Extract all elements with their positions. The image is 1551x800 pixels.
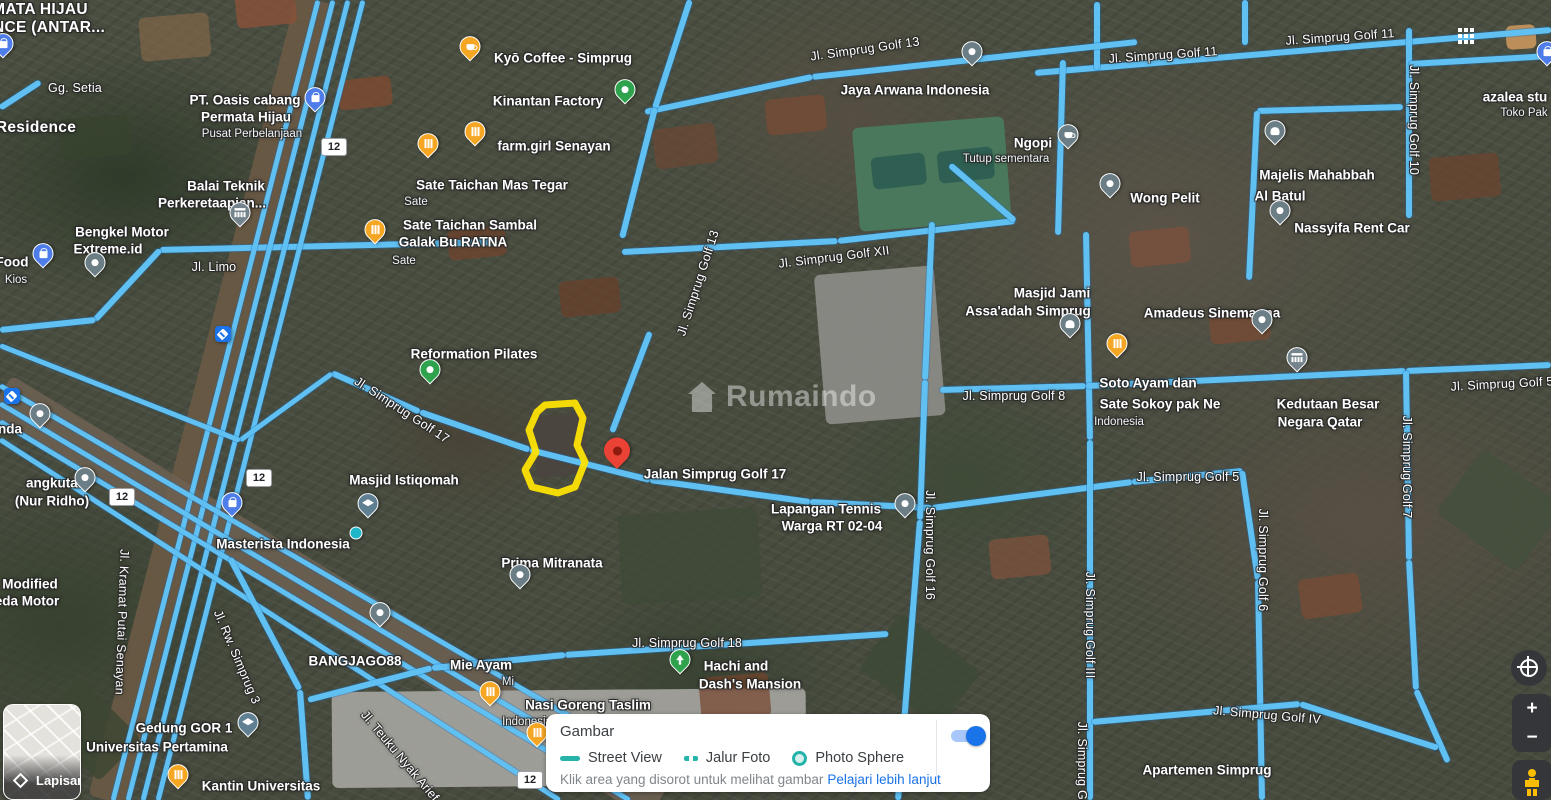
photo-sphere-icon (792, 751, 807, 766)
gray-glyph-icon (511, 565, 530, 584)
school-glyph-icon (239, 713, 258, 732)
map-label: Kantin Universitas (202, 779, 321, 794)
bank-glyph-icon (1288, 348, 1307, 367)
images-panel-title: Gambar (560, 723, 614, 740)
map-label: (Nur Ridho) (15, 494, 89, 509)
street-view-road[interactable] (1413, 689, 1450, 763)
sate-taichan-mas-tegar-pin[interactable] (413, 129, 443, 159)
terrain-patch (859, 612, 981, 728)
terrain-patch (651, 122, 718, 170)
map-label: DENCE (ANTAR... (0, 19, 105, 37)
photo-sphere-dot-pin[interactable] (350, 527, 363, 540)
food-glyph-icon (366, 220, 385, 239)
map-label: Jl. Simprug Golf 8 (963, 389, 1066, 403)
transit-station-b-pin[interactable] (4, 388, 20, 404)
street-view-road[interactable] (609, 331, 653, 433)
map-label: Jl. Simprug Golf 5 (1137, 470, 1240, 484)
street-view-road[interactable] (0, 317, 95, 333)
map-label: Tutup sementara (963, 153, 1050, 165)
map-label: Jalan Simprug Golf 17 (644, 467, 787, 482)
lapangan-tennis-pin[interactable] (890, 489, 920, 519)
map-label: Galak Bu RATNA (399, 235, 508, 250)
map-label: Majelis Mahabbah (1259, 168, 1375, 183)
map-label: Jl. Simprug Golf 13 (810, 34, 921, 63)
map-label: Nasi Goreng Taslim (525, 698, 651, 713)
map-label: Universitas Pertamina (86, 740, 228, 755)
zoom-control: + − (1512, 694, 1551, 752)
map-label: Wong Pelit (1130, 191, 1200, 206)
toggle-thumb (966, 726, 986, 746)
map-label: Jl. Simprug Golf III (1083, 572, 1097, 679)
map-label: Jl. Simprug Golf 7 (1400, 416, 1414, 519)
terrain-patch (138, 12, 212, 62)
map-label: Gg. Setia (48, 81, 102, 95)
map-label: Jl. Simprug Golf 18 (632, 636, 742, 650)
street-view-label: Street View (588, 750, 662, 766)
map-label: Sate Taichan Sambal (403, 218, 537, 233)
pegman-icon (1524, 769, 1540, 791)
map-label: Jl. Simprug Golf 5 (1450, 374, 1551, 393)
map-label: BANGJAGO88 (308, 654, 401, 669)
street-view-road[interactable] (652, 0, 693, 109)
map-viewport: Rumaindo MATA HIJAUDENCE (ANTAR...Reside… (0, 0, 1551, 800)
street-view-road[interactable] (1406, 362, 1551, 374)
street-view-road[interactable] (1094, 2, 1100, 70)
street-view-road[interactable] (0, 79, 42, 110)
map-label: Sate (392, 255, 416, 267)
gray-glyph-icon (76, 468, 95, 487)
learn-more-link[interactable]: Pelajari lebih lanjut (827, 772, 940, 787)
map-label: Warga RT 02-04 (782, 519, 883, 534)
my-location-button[interactable] (1511, 650, 1547, 686)
map-label: Indonesia (1094, 416, 1144, 428)
mosque-glyph-icon (1061, 314, 1080, 333)
kyo-coffee-pin[interactable] (455, 32, 485, 62)
coffeegray-glyph-icon (1059, 125, 1078, 144)
apartment-grid-pin[interactable] (1458, 28, 1474, 44)
terrain-patch (1436, 448, 1551, 572)
food-kios-pin[interactable] (28, 239, 58, 269)
zoom-in-button[interactable]: + (1512, 694, 1551, 723)
map-label: Sate Taichan Mas Tegar (416, 178, 568, 193)
street-view-road[interactable] (1055, 60, 1066, 235)
jalan-simprug-golf-17-marker-pin[interactable] (599, 432, 636, 469)
map-label: Negara Qatar (1278, 415, 1363, 430)
layers-label: Lapisan (36, 773, 81, 788)
photo-sphere-label: Photo Sphere (815, 750, 904, 766)
bag-glyph-icon (306, 88, 325, 107)
case-glyph-icon (223, 493, 242, 512)
bank-glyph-icon (231, 203, 250, 222)
gray-glyph-icon (1101, 174, 1120, 193)
map-label: Kinantan Factory (493, 94, 603, 109)
school-glyph-icon (359, 494, 378, 513)
route-shield: 12 (321, 138, 347, 156)
map-label: Mi (502, 676, 514, 688)
bag-glyph-icon (1538, 42, 1551, 61)
map-label: Kyō Coffee - Simprug (494, 51, 632, 66)
green-glyph-icon (616, 80, 635, 99)
map-label: Food (0, 255, 29, 270)
map-label: PT. Oasis cabang (189, 93, 300, 108)
map-label: Permata Hijau (201, 110, 291, 125)
transit-station-a-pin[interactable] (215, 326, 231, 342)
map-label: Residence (0, 119, 76, 137)
food-glyph-icon (169, 765, 188, 784)
map-label: Jl. Simprug Golf 6 (1256, 509, 1270, 612)
food-glyph-icon (1108, 334, 1127, 353)
food-glyph-icon (481, 682, 500, 701)
map-label: Jl. Simprug Golf 16 (923, 490, 937, 600)
kinantan-factory-pin[interactable] (610, 75, 640, 105)
tree-glyph-icon (671, 650, 690, 669)
street-view-road[interactable] (1406, 560, 1419, 690)
images-panel: Gambar Street View Jalur Foto Photo Sphe… (546, 714, 990, 792)
watermark-house-icon (688, 382, 716, 412)
map-label: nda (0, 422, 22, 437)
map-label: Jl. Simprug Golf 17 (352, 374, 452, 446)
jalur-foto-label: Jalur Foto (706, 750, 770, 766)
route-shield: 12 (517, 771, 543, 789)
map-label: azalea stu (1483, 90, 1548, 105)
food-glyph-icon (419, 134, 438, 153)
street-view-road[interactable] (1242, 0, 1248, 45)
gray-glyph-icon (1253, 310, 1272, 329)
map-label: Lapangan Tennis (771, 502, 881, 517)
map-label: Modified (2, 577, 58, 592)
gray-glyph-icon (86, 253, 105, 272)
street-view-road[interactable] (1083, 232, 1093, 440)
kedutaan-qatar-pin[interactable] (1282, 343, 1312, 373)
majelis-mahabbah-pin[interactable] (1260, 116, 1290, 146)
map-label: Jl. Rw. Simprug 3 (211, 608, 263, 706)
street-view-road[interactable] (619, 107, 658, 238)
map-label: Sate Sokoy pak Ne (1100, 397, 1221, 412)
route-shield: 12 (109, 488, 135, 506)
map-label: Gedung GOR 1 (136, 721, 233, 736)
map-label: Jl. Limo (192, 260, 237, 274)
map-label: Toko Pak (1500, 107, 1547, 119)
grid-glyph-icon (1458, 28, 1474, 44)
map-label: Masjid Jami (1014, 286, 1091, 301)
terrain-patch (988, 534, 1052, 580)
gray-glyph-icon (896, 494, 915, 513)
gray-glyph-icon (963, 42, 982, 61)
map-label: Jaya Arwana Indonesia (841, 83, 990, 98)
street-view-line-icon (560, 756, 580, 761)
bag-glyph-icon (0, 34, 13, 53)
terrain-patch (558, 276, 622, 318)
satellite-map[interactable]: Rumaindo MATA HIJAUDENCE (ANTAR...Reside… (0, 0, 1551, 800)
map-label: Bengkel Motor (75, 225, 169, 240)
map-label: Hachi and (704, 659, 769, 674)
mosque-glyph-icon (1266, 121, 1285, 140)
soto-ayam-sate-sokoy-pin[interactable] (1102, 329, 1132, 359)
kantin-universitas-pin[interactable] (163, 760, 193, 790)
map-label: Masterista Indonesia (216, 537, 350, 552)
map-label: Jl. Simprug Golf III (1075, 722, 1089, 800)
map-label: Apartemen Simprug (1142, 763, 1271, 778)
bag-glyph-icon (34, 244, 53, 263)
map-label: Sate (404, 196, 428, 208)
gedung-gor-pin[interactable] (233, 708, 263, 738)
terrain-patch (764, 94, 828, 136)
legend-row: Street View Jalur Foto Photo Sphere (560, 750, 904, 766)
terrain-patch (1128, 226, 1192, 268)
terrain-patch (1297, 572, 1362, 620)
layers-button[interactable]: Lapisan (3, 704, 81, 800)
farmgirl-senayan-pin[interactable] (460, 117, 490, 147)
map-label: Balai Teknik (187, 179, 265, 194)
terrain-patch (617, 507, 762, 605)
map-label: Dash's Mansion (699, 677, 801, 692)
terrain-patch (870, 152, 928, 190)
map-label: farm.girl Senayan (497, 139, 610, 154)
route-shield: 12 (246, 469, 272, 487)
terrain-patch (1428, 152, 1502, 202)
map-label: Nassyifa Rent Car (1294, 221, 1410, 236)
images-toggle[interactable] (951, 730, 983, 742)
panel-caption: Klik area yang disorot untuk melihat gam… (560, 772, 941, 787)
map-label: Soto Ayam dan (1099, 376, 1196, 391)
map-label: Pusat Perbelanjaan (202, 128, 302, 140)
gray-glyph-icon (1271, 201, 1290, 220)
gray-glyph-icon (371, 603, 390, 622)
map-label: Masjid Istiqomah (349, 473, 459, 488)
jalur-foto-dashes-icon (684, 756, 698, 761)
street-view-road[interactable] (1409, 53, 1551, 67)
map-label: eda Motor (0, 594, 59, 609)
map-label: Mie Ayam (450, 658, 512, 673)
map-label: Kedutaan Besar (1277, 397, 1380, 412)
my-location-icon (1520, 659, 1538, 677)
map-label: Jl. Simprug Golf 10 (1407, 65, 1421, 175)
wong-pelit-pin[interactable] (1095, 169, 1125, 199)
sate-taichan-ratna-pin[interactable] (360, 215, 390, 245)
dest-glyph-icon (604, 438, 630, 464)
map-label: Kios (5, 274, 27, 286)
gray-glyph-icon (31, 404, 50, 423)
food-glyph-icon (528, 723, 547, 742)
pegman-button[interactable] (1512, 760, 1551, 800)
street-view-road[interactable] (1257, 104, 1403, 114)
street-view-road[interactable] (932, 479, 1133, 511)
food-glyph-icon (466, 122, 485, 141)
map-label: MATA HIJAU (0, 1, 88, 19)
coffee-glyph-icon (461, 37, 480, 56)
terrain-patch (530, 411, 589, 479)
green-glyph-icon (421, 360, 440, 379)
masjid-istiqomah-pin[interactable] (353, 489, 383, 519)
zoom-out-button[interactable]: − (1512, 723, 1551, 752)
map-label: Extreme.id (73, 242, 142, 257)
map-label: Jl. Simprug Golf XII (778, 243, 891, 271)
map-label: Ngopi (1014, 136, 1052, 151)
